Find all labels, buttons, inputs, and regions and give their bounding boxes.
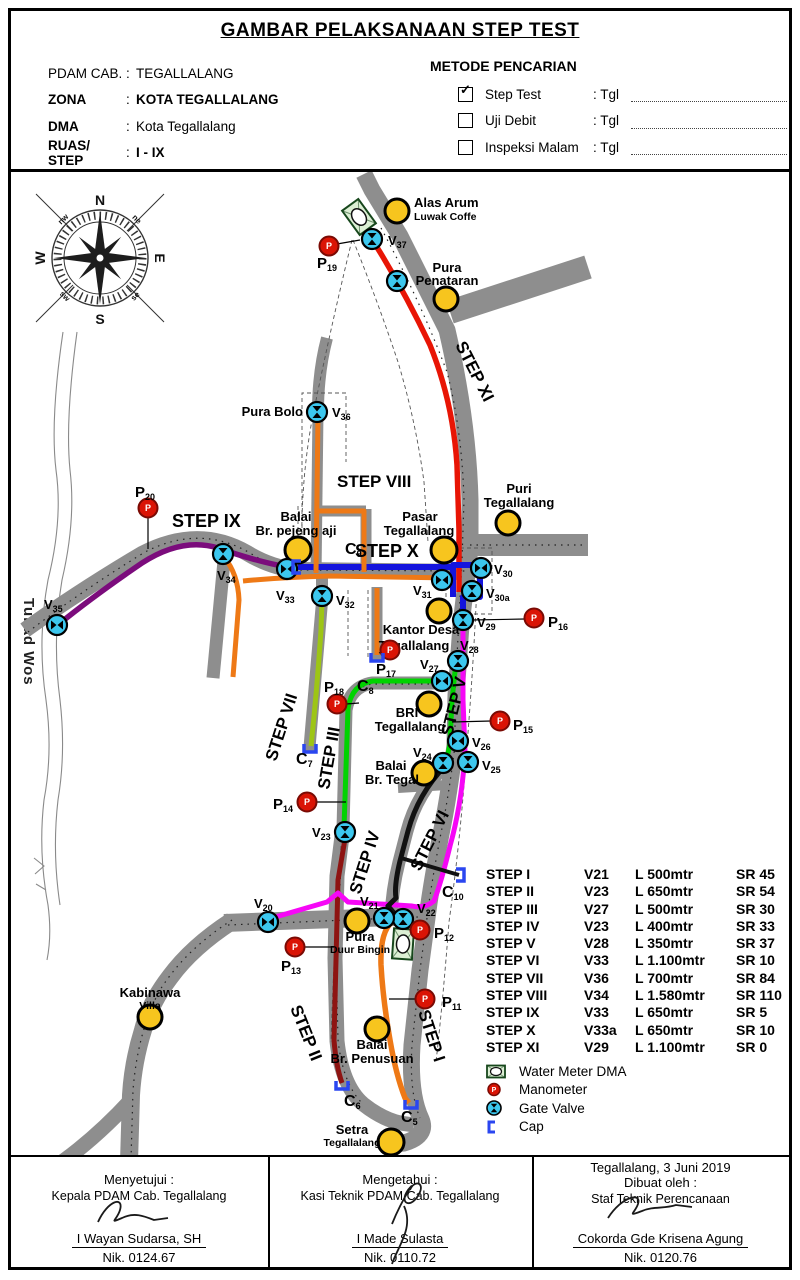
gate-valve-v25-icon xyxy=(458,752,478,772)
svg-text:Balai: Balai xyxy=(375,758,406,773)
manometer-glyph: P xyxy=(417,925,423,935)
gate-valve-v21-icon xyxy=(374,908,394,928)
approve-role: Kepala PDAM Cab. Tegallalang xyxy=(11,1189,267,1203)
poi-marker xyxy=(496,511,520,535)
tgl-dotted-line xyxy=(631,113,787,129)
poi-puri-tegallalang: Puri Tegallalang xyxy=(484,481,555,535)
signer-nik: Nik. 0120.76 xyxy=(533,1250,788,1265)
signature-block-left: Menyetujui : Kepala PDAM Cab. Tegallalan… xyxy=(11,1172,267,1267)
svg-text:Tegallalang: Tegallalang xyxy=(484,495,555,510)
manometer-glyph: P xyxy=(422,994,428,1004)
signer-nik: Nik. 0110.72 xyxy=(269,1250,531,1265)
svg-text:P: P xyxy=(492,1087,497,1094)
manometer-label-p15: P15 xyxy=(513,717,533,735)
compass-e: E xyxy=(152,253,168,262)
poi-pura-bolo: Pura Bolo xyxy=(242,404,303,419)
gate-valve-v22-icon xyxy=(393,909,413,929)
table-row: STEP XIV29L 1.100mtrSR 0 xyxy=(486,1039,798,1056)
gate-valve-v36-icon xyxy=(307,402,327,422)
gate-valve-v34-icon xyxy=(213,544,233,564)
valve-label-v20: V20 xyxy=(254,896,273,913)
valve-label-v33: V33 xyxy=(276,588,295,605)
table-row: STEP IIV23L 650mtrSR 54 xyxy=(486,883,798,900)
river-label: Tukad Wos xyxy=(20,598,37,686)
step-label-ix: STEP IX xyxy=(172,511,241,531)
poi-marker xyxy=(417,692,441,716)
compass-ne: ne xyxy=(130,213,143,226)
valve-label-v24: V24 xyxy=(413,745,432,762)
approve-label: Menyetujui : xyxy=(11,1172,267,1187)
manometer-label-p13: P13 xyxy=(281,958,301,976)
poi-alas-arum: Alas Arum Luwak Coffe xyxy=(385,195,479,223)
svg-text:Br. Penusuan: Br. Penusuan xyxy=(330,1051,413,1066)
gate-valve-legend-icon xyxy=(486,1100,508,1116)
gate-valve-icon xyxy=(387,271,407,291)
step-table: STEP IV21L 500mtrSR 45 STEP IIV23L 650mt… xyxy=(486,866,798,1056)
signature-block-middle: Mengetahui : Kasi Teknik PDAM Cab. Tegal… xyxy=(269,1172,531,1267)
compass-n: N xyxy=(95,192,105,208)
svg-text:Tegallalang: Tegallalang xyxy=(324,1137,381,1149)
valve-label-v27: V27 xyxy=(420,657,439,674)
svg-text:Setra: Setra xyxy=(336,1122,369,1137)
gate-valve-v28-icon xyxy=(448,651,468,671)
svg-text:Balai: Balai xyxy=(356,1037,387,1052)
svg-text:Br. pejeng aji: Br. pejeng aji xyxy=(256,523,337,538)
valve-label-v30a: V30a xyxy=(486,586,511,603)
manometer-glyph: P xyxy=(334,699,340,709)
made-by-role: Staf Teknik Perencanaan xyxy=(533,1192,788,1206)
valve-label-v29: V29 xyxy=(477,615,496,632)
valve-label-v25: V25 xyxy=(482,758,501,775)
legend-row-manometer: P Manometer xyxy=(486,1081,627,1100)
svg-text:Pura Bolo: Pura Bolo xyxy=(242,404,303,419)
valve-label-v26: V26 xyxy=(472,735,491,752)
step-test-document: GAMBAR PELAKSANAAN STEP TEST PDAM CAB. :… xyxy=(0,0,800,1280)
place-date: Tegallalang, 3 Juni 2019 xyxy=(533,1160,788,1175)
svg-text:Alas Arum: Alas Arum xyxy=(414,195,479,210)
tgl-dotted-line xyxy=(631,86,787,102)
svg-text:Villa: Villa xyxy=(139,1000,161,1012)
valve-label-v30: V30 xyxy=(494,562,513,579)
manometer-label-p14: P14 xyxy=(273,796,293,814)
manometer-label-p17: P17 xyxy=(376,661,396,679)
manometer-label-p19: P19 xyxy=(317,255,337,273)
gate-valve-v30a-icon xyxy=(462,581,482,601)
gate-valve-v35-icon xyxy=(47,615,67,635)
legend-row-gate-valve: Gate Valve xyxy=(486,1099,627,1118)
manometer-label-p12: P12 xyxy=(434,925,454,943)
river-tukad-wos xyxy=(34,332,77,960)
valve-label-v21: V21 xyxy=(360,894,379,911)
svg-text:Kantor Desa: Kantor Desa xyxy=(383,622,460,637)
field-ruas-step: RUAS/ STEP : I - IX xyxy=(48,140,278,167)
manometer-glyph: P xyxy=(531,613,537,623)
svg-text:Balai: Balai xyxy=(280,509,311,524)
manometer-label-p18: P18 xyxy=(324,679,344,697)
valve-label-v36: V36 xyxy=(332,405,351,422)
compass-w: W xyxy=(32,251,48,265)
gate-valve-v26-icon xyxy=(448,731,468,751)
poi-marker xyxy=(385,199,409,223)
manometer-label-p11: P11 xyxy=(442,994,462,1012)
metode-row-inspeksi-malam: Inspeksi Malam : Tgl xyxy=(430,134,787,161)
gate-valve-v24-icon xyxy=(433,753,453,773)
cap-legend-icon xyxy=(486,1120,508,1134)
table-row: STEP IIIV27L 500mtrSR 30 xyxy=(486,901,798,918)
metode-row-uji-debit: Uji Debit : Tgl xyxy=(430,108,787,135)
valve-label-v23: V23 xyxy=(312,825,331,842)
footer-separator xyxy=(11,1155,789,1157)
metode-pencarian: METODE PENCARIAN ✓ Step Test : Tgl Uji D… xyxy=(430,58,787,161)
poi-kabinawa-villa: Kabinawa Villa xyxy=(120,985,181,1029)
svg-text:BRI: BRI xyxy=(396,705,418,720)
manometer-glyph: P xyxy=(292,942,298,952)
manometer-glyph: P xyxy=(497,716,503,726)
table-row: STEP XV33aL 650mtrSR 10 xyxy=(486,1022,798,1039)
legend-row-cap: Cap xyxy=(486,1118,627,1137)
signer-name: Cokorda Gde Krisena Agung xyxy=(533,1231,788,1248)
table-row: STEP VV28L 350mtrSR 37 xyxy=(486,935,798,952)
header-separator xyxy=(11,169,789,172)
header-fields: PDAM CAB. : TEGALLALANG ZONA : KOTA TEGA… xyxy=(48,60,278,166)
manometer-legend-icon: P xyxy=(486,1082,508,1097)
field-pdam-cab: PDAM CAB. : TEGALLALANG xyxy=(48,60,278,87)
gate-valve-v32-icon xyxy=(312,586,332,606)
svg-text:Puri: Puri xyxy=(506,481,531,496)
svg-text:Tegallalang: Tegallalang xyxy=(384,523,455,538)
poi-marker xyxy=(431,537,457,563)
water-meter-dma-legend-icon xyxy=(486,1064,508,1079)
signer-name: I Made Sulasta xyxy=(269,1231,531,1248)
compass-s: S xyxy=(95,311,104,327)
svg-text:Duur Bingin: Duur Bingin xyxy=(330,944,390,956)
pipe-step-viii-d xyxy=(243,576,452,581)
step-label-viii: STEP VIII xyxy=(337,472,411,491)
legend: Water Meter DMA P Manometer Gate Valve C… xyxy=(486,1062,627,1136)
pipe-step-viii-a xyxy=(316,414,318,573)
metode-row-step-test: ✓ Step Test : Tgl xyxy=(430,81,787,108)
table-row: STEP IVV23L 400mtrSR 33 xyxy=(486,918,798,935)
inspeksi-malam-checkbox[interactable] xyxy=(458,140,473,155)
manometer-label-p20: P20 xyxy=(135,484,155,502)
poi-marker xyxy=(434,287,458,311)
step-test-checkbox[interactable]: ✓ xyxy=(458,87,473,102)
field-zona: ZONA : KOTA TEGALLALANG xyxy=(48,87,278,114)
svg-text:Br. Tegal: Br. Tegal xyxy=(365,772,419,787)
poi-marker xyxy=(378,1129,404,1155)
manometer-glyph: P xyxy=(326,241,332,251)
signer-name: I Wayan Sudarsa, SH xyxy=(11,1231,267,1248)
poi-balai-tegal: Balai Br. Tegal xyxy=(365,758,436,787)
svg-text:Pasar: Pasar xyxy=(402,509,437,524)
signer-nik: Nik. 0124.67 xyxy=(11,1250,267,1265)
svg-text:Tegallalang: Tegallalang xyxy=(375,719,446,734)
gate-valve-v37-icon xyxy=(362,229,382,249)
gate-valve-v20-icon xyxy=(258,912,278,932)
gate-valve-v23-icon xyxy=(335,822,355,842)
know-label: Mengetahui : xyxy=(269,1172,531,1187)
gate-valve-v27-icon xyxy=(432,671,452,691)
table-row: STEP VIV33L 1.100mtrSR 10 xyxy=(486,952,798,969)
gate-valve-v31-icon xyxy=(432,570,452,590)
metode-title: METODE PENCARIAN xyxy=(430,58,787,74)
svg-text:Kabinawa: Kabinawa xyxy=(120,985,181,1000)
compass-nw: nw xyxy=(56,212,71,227)
signature-block-right: Tegallalang, 3 Juni 2019 Dibuat oleh : S… xyxy=(533,1160,788,1267)
step-label-x: STEP X xyxy=(355,541,419,561)
manometer-label-p16: P16 xyxy=(548,614,568,632)
valve-label-v32: V32 xyxy=(336,593,355,610)
know-role: Kasi Teknik PDAM Cab. Tegallalang xyxy=(269,1189,531,1203)
gate-valve-v30-icon xyxy=(471,558,491,578)
valve-label-v28: V28 xyxy=(460,638,479,655)
manometer-glyph: P xyxy=(304,797,310,807)
cap-label-c10: C10 xyxy=(442,884,464,902)
table-row: STEP IXV33L 650mtrSR 5 xyxy=(486,1004,798,1021)
table-row: STEP VIIV36L 700mtrSR 84 xyxy=(486,970,798,987)
step-label-ii: STEP II xyxy=(286,1002,325,1063)
poi-marker xyxy=(427,599,451,623)
tgl-dotted-line xyxy=(631,139,787,155)
compass-rose: N S E W ne nw se sw xyxy=(32,192,168,327)
made-by-label: Dibuat oleh : xyxy=(533,1175,788,1190)
manometer-glyph: P xyxy=(387,645,393,655)
network-map: Tukad Wos xyxy=(0,0,800,1280)
page-title: GAMBAR PELAKSANAAN STEP TEST xyxy=(0,20,800,42)
table-row: STEP IV21L 500mtrSR 45 xyxy=(486,866,798,883)
valve-label-v31: V31 xyxy=(413,583,432,600)
manometer-glyph: P xyxy=(145,503,151,513)
svg-text:Penataran: Penataran xyxy=(416,273,479,288)
svg-text:Pura: Pura xyxy=(346,929,376,944)
legend-row-water-meter: Water Meter DMA xyxy=(486,1062,627,1081)
check-mark: ✓ xyxy=(460,82,471,98)
poi-bri-tegallalang: BRI Tegallalang xyxy=(375,692,446,734)
uji-debit-checkbox[interactable] xyxy=(458,113,473,128)
gate-valve-v29-icon xyxy=(453,610,473,630)
svg-text:Luwak Coffe: Luwak Coffe xyxy=(414,211,477,223)
table-row: STEP VIIIV34L 1.580mtrSR 110 xyxy=(486,987,798,1004)
field-dma: DMA : Kota Tegallalang xyxy=(48,113,278,140)
